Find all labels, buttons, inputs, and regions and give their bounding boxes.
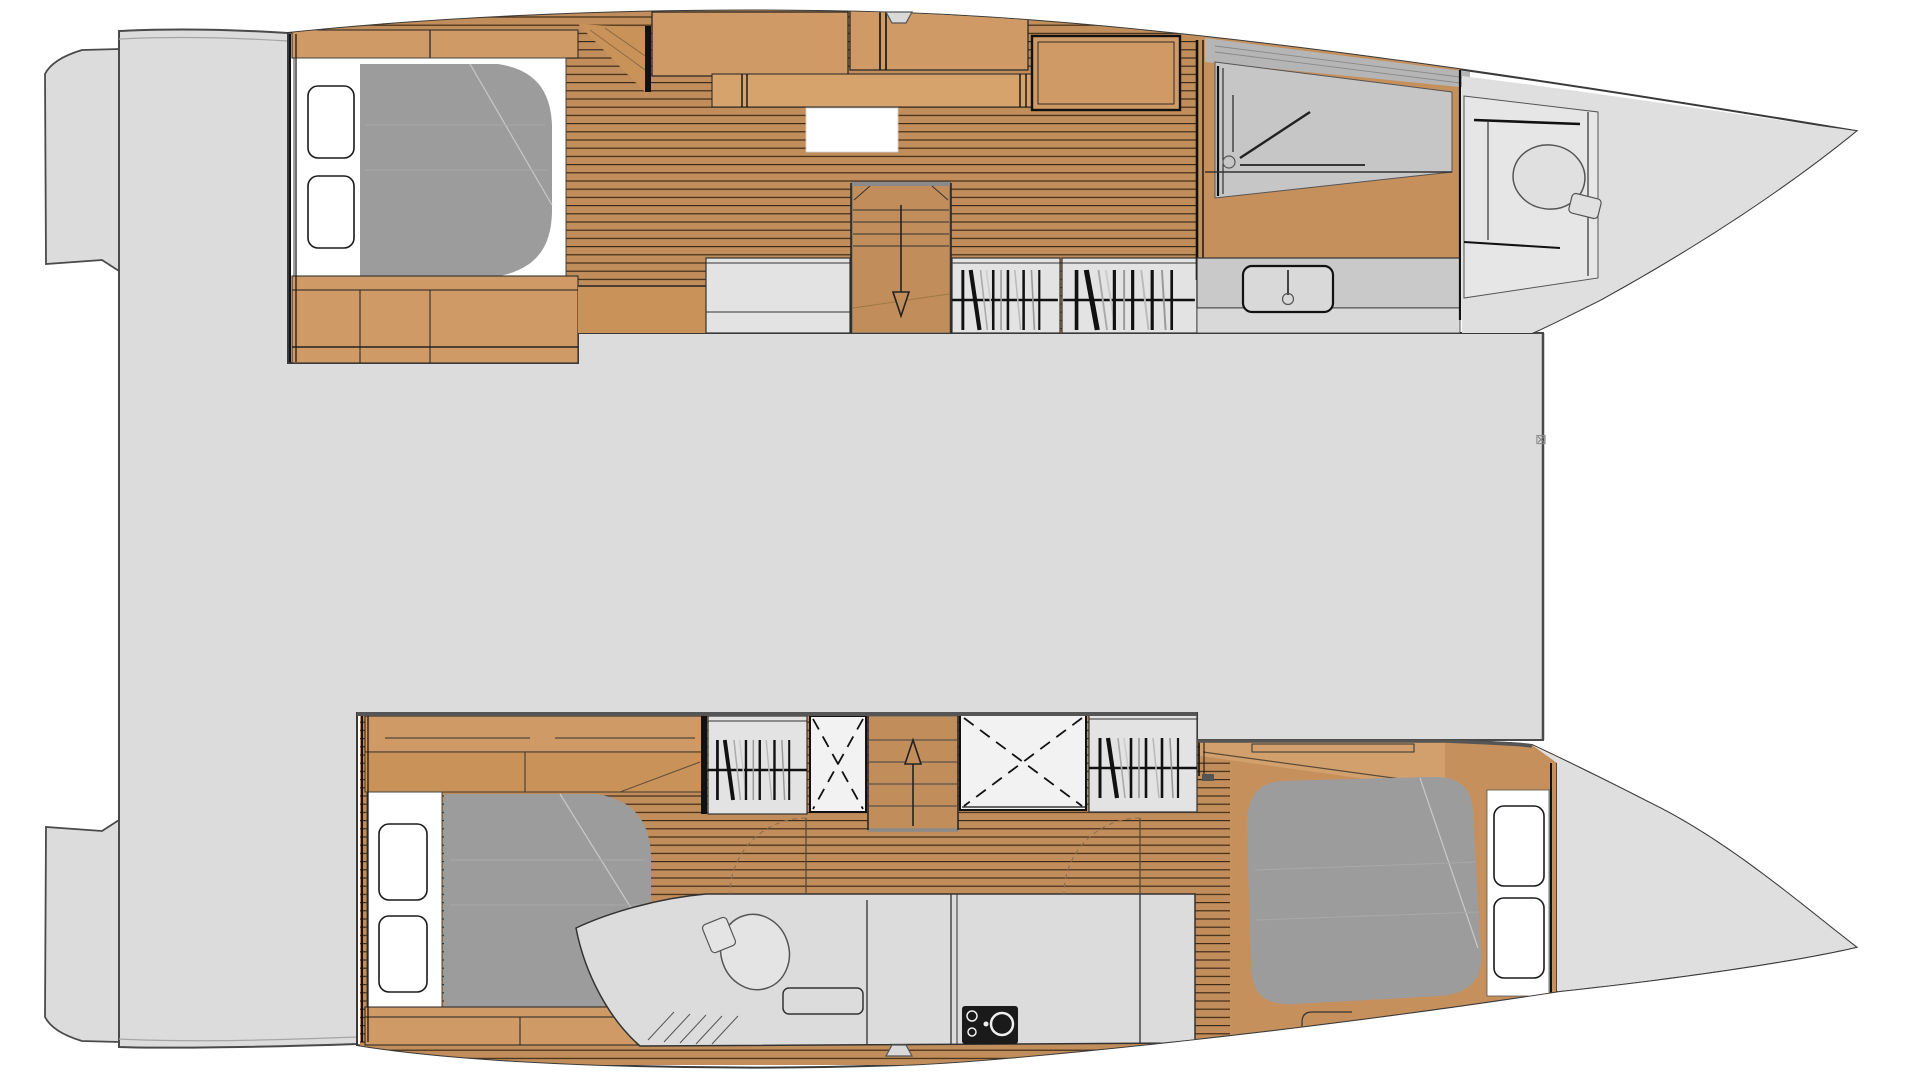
- bottom-bow-deck: [1532, 745, 1856, 991]
- floor-plan-svg: ⊠: [0, 0, 1907, 1078]
- saloon-table: [806, 108, 898, 152]
- mattress: [1247, 777, 1481, 1004]
- crossed-locker: [960, 714, 1086, 810]
- shower-room: [1205, 38, 1470, 198]
- bulkhead-stub: [701, 714, 707, 814]
- wardrobe: [952, 258, 1060, 333]
- engine-unit-icon: [962, 1006, 1018, 1044]
- pillow: [379, 824, 427, 900]
- dresser-cabinet: [706, 258, 850, 333]
- stern-platform-top: [45, 49, 119, 271]
- settee-aft: [652, 12, 848, 76]
- stairs-down: [851, 182, 951, 333]
- headboard-cabinet: [292, 30, 578, 58]
- bulkhead-stub: [645, 26, 651, 92]
- pillow: [308, 176, 354, 248]
- vanity-bench: [783, 988, 863, 1014]
- headboard-cabinet-low: [365, 752, 703, 792]
- catamaran-floor-plan: ⊠: [0, 0, 1907, 1078]
- bottom-hull: [357, 713, 1856, 1068]
- seat-bench: [712, 74, 1048, 107]
- headboard-cabinet: [365, 716, 703, 752]
- forestay-marker-icon: ⊠: [1535, 432, 1547, 448]
- stern-platform-bottom: [45, 820, 119, 1042]
- galley-cabinet: [1032, 36, 1180, 110]
- cabin-entry-floor: [578, 286, 706, 333]
- bathroom-floor: [576, 894, 1195, 1046]
- pillow: [379, 916, 427, 992]
- top-aft-cabin: [290, 30, 578, 363]
- top-hull: [288, 6, 1856, 363]
- wardrobe: [1089, 714, 1197, 812]
- door-hinge-tick: [1202, 774, 1214, 781]
- galley-counter: [1197, 258, 1460, 333]
- wardrobe: [1062, 258, 1197, 333]
- pillow: [1494, 898, 1544, 978]
- stairs-up: [868, 716, 958, 830]
- wardrobe: [707, 716, 807, 814]
- toilet-room: [1464, 96, 1602, 298]
- pillow: [308, 86, 354, 158]
- settee-forward: [850, 6, 1028, 70]
- crossed-locker: [810, 716, 866, 812]
- bed-foot-cabinet: [292, 276, 578, 363]
- pillow: [1494, 806, 1544, 886]
